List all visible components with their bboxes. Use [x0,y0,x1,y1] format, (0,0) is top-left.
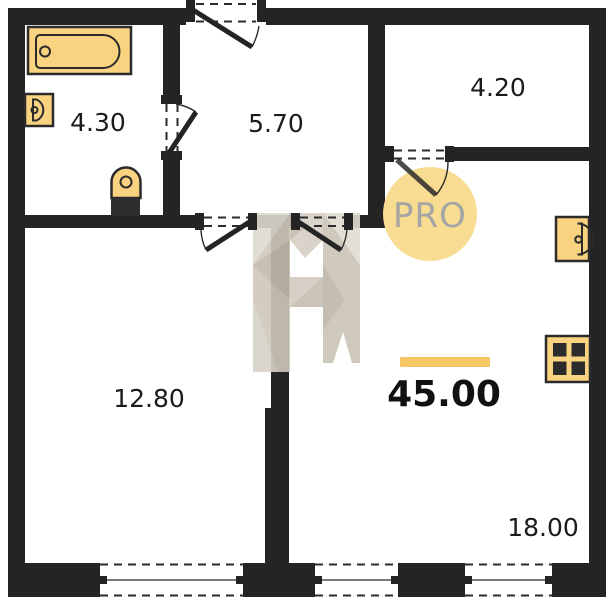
window-stop [236,576,243,584]
watermark-logo-h [253,213,360,372]
total-area-label: 45.00 [387,374,501,415]
door-jamb [257,0,266,22]
window-2 [315,565,398,596]
door-jamb [344,213,353,230]
window-stop [315,576,322,584]
door-leaf [169,112,196,153]
wall-right [589,8,606,597]
kitchen-sink-icon [556,217,593,261]
room-label-bathroom: 4.30 [70,108,126,137]
room-label-living-room: 12.80 [113,384,185,413]
door-jamb [445,146,454,162]
burner [553,343,567,357]
wall-hallway-right [368,25,385,228]
door-jamb [383,146,394,162]
wall-bathroom-right-lower [163,160,180,215]
room-label-storage: 4.20 [470,73,526,102]
wall-storage-bottom [450,147,589,161]
pro-badge: PRO [383,167,477,261]
bathtub-icon [28,27,131,74]
wall-bottom-seg-4 [552,563,606,597]
pro-badge-label: PRO [393,196,467,236]
window-stop [465,576,472,584]
door-swing-arc [252,26,259,47]
door-jamb [195,213,204,230]
floor-plan-canvas: PRO [0,0,614,600]
window-stop [545,576,552,584]
wall-bottom-seg-1 [8,563,100,597]
wall-top-left [8,8,186,25]
window-stop [391,576,398,584]
window-1 [100,565,243,596]
burner [572,343,586,357]
wall-bottom-seg-3 [398,563,465,597]
wall-top-right [266,8,606,25]
floor-plan: PRO [0,0,614,600]
bathroom-door [161,95,196,160]
door-jamb [161,95,182,104]
window-3 [465,565,552,596]
total-area-accent-bar [400,357,490,367]
door-swing-arc [176,104,196,112]
door-leaf [206,221,251,250]
room-label-hallway: 5.70 [248,109,304,138]
window-stop [100,576,107,584]
burner [553,362,567,376]
wall-hall-bottom-seg-1 [25,215,198,228]
wall-bottom-seg-2 [243,563,315,597]
toilet-icon [111,168,141,217]
door-swing-arc [201,230,206,250]
room-label-kitchen-living: 18.00 [507,513,579,542]
burner [572,362,586,376]
living-room-door [195,213,257,250]
entry-door [186,0,266,47]
wall-room-divider-lower [265,408,289,563]
wall-bathroom-right-upper [163,25,180,95]
stove-icon [546,336,590,382]
wall-left [8,8,25,597]
door-leaf [193,10,252,47]
bathroom-sink-icon [25,94,53,126]
